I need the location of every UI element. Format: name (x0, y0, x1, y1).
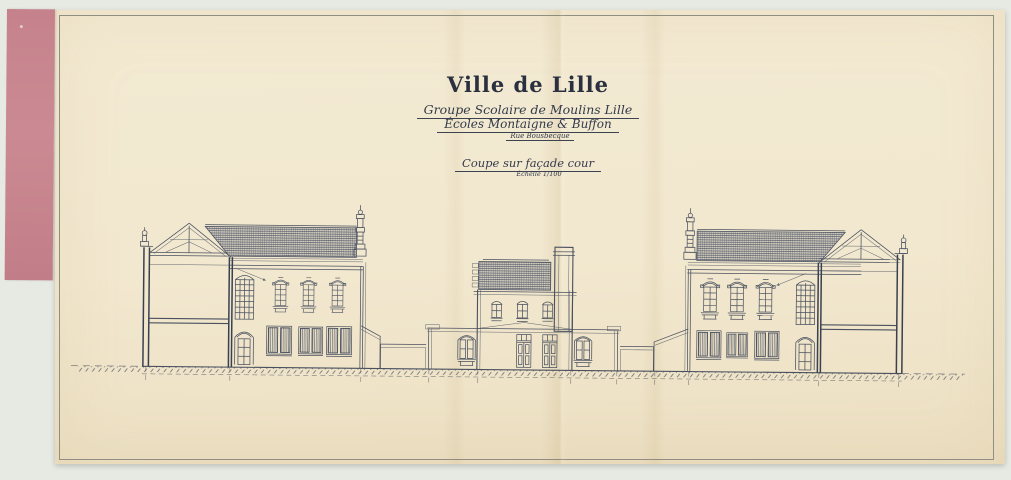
upper-window (272, 277, 289, 312)
scanned-drawing-sheet: Ville de Lille Groupe Scolaire de Moulin… (0, 0, 1011, 480)
grille-window (754, 331, 779, 360)
upper-window (727, 279, 746, 319)
right-building-section (653, 208, 908, 374)
courtyard-wall-left (380, 344, 426, 369)
upper-window (756, 279, 775, 319)
grille-window (266, 326, 292, 356)
pavilion-roof (479, 262, 551, 291)
grille-window (696, 331, 721, 360)
downspout (365, 262, 366, 368)
grille-window (726, 333, 748, 358)
leader-line (236, 268, 266, 280)
upper-window (329, 278, 346, 313)
stair-window (235, 275, 254, 319)
grille-window (326, 327, 352, 357)
ridge-pinnacle (684, 208, 697, 259)
leader-line (777, 273, 806, 285)
stair-door (235, 332, 254, 365)
central-pavilion (380, 246, 655, 372)
stair-window (796, 281, 815, 325)
french-door (542, 335, 557, 368)
stair-door (796, 337, 815, 370)
courtyard-wall-right (620, 346, 654, 371)
downspout (685, 265, 686, 371)
upper-window (700, 279, 719, 319)
roof-finial (141, 227, 149, 246)
upper-window (300, 278, 317, 313)
lean-to-shed (653, 329, 688, 372)
attic-window (491, 301, 503, 320)
slate-roof (697, 231, 845, 262)
attic-window (542, 302, 554, 321)
attic-window (516, 301, 529, 321)
twin-arched-window (573, 337, 592, 367)
section-elevation-drawing (0, 0, 1011, 480)
left-building-section (139, 203, 382, 369)
chimney (552, 247, 575, 331)
grille-window (298, 327, 323, 356)
lean-to-shed (361, 326, 381, 369)
french-door (516, 335, 531, 368)
slate-roof (205, 226, 357, 257)
ground-line (71, 366, 965, 388)
twin-arched-window (457, 336, 476, 366)
one-storey-wing (425, 322, 620, 371)
roof-finial (899, 235, 907, 254)
